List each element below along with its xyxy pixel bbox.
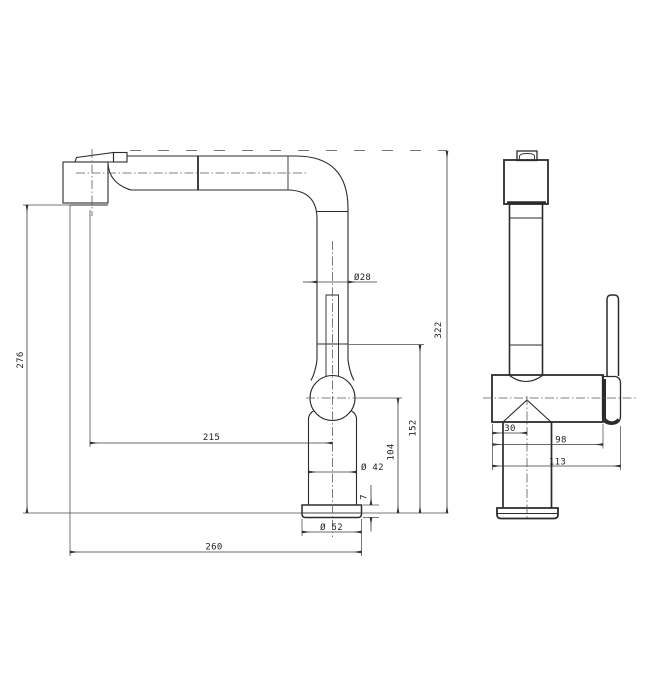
spray-button-tab [114,153,128,163]
dim-label-30: 30 [504,424,515,434]
dim-label-113: 113 [549,458,566,468]
dimension-labels: 276 322 152 104 7 215 260 Ø28 Ø 42 Ø 52 … [16,272,567,553]
dim-label-322: 322 [434,321,444,338]
dim-label-215: 215 [203,433,220,443]
technical-drawing-canvas: 276 322 152 104 7 215 260 Ø28 Ø 42 Ø 52 … [0,0,645,700]
spray-head-side [504,151,548,204]
dim-label-260: 260 [205,543,222,553]
spout-tube [127,156,348,219]
mixer-body-side [492,375,603,422]
bend-inner-arc [288,190,317,219]
handle-lever-bar [607,295,619,376]
dim-label-104: 104 [387,443,397,460]
bend-outer-arc [296,156,349,209]
dim-label-98: 98 [555,436,566,446]
dim-label-dia52: Ø 52 [320,522,343,533]
base-flange-front [302,505,362,518]
dim-label-152: 152 [409,419,419,436]
faucet-dimension-drawing: 276 322 152 104 7 215 260 Ø28 Ø 42 Ø 52 … [0,0,645,700]
spray-toggle-button [75,153,114,163]
dim-label-7: 7 [360,494,370,500]
spray-head [63,153,131,206]
dim-label-276: 276 [16,351,26,368]
lever-handle [603,295,621,424]
riser-side [510,204,543,376]
dim-label-dia42: Ø 42 [361,462,384,473]
dim-label-dia28: Ø28 [354,272,371,283]
base-flange-side [497,508,558,519]
front-view [63,149,362,537]
